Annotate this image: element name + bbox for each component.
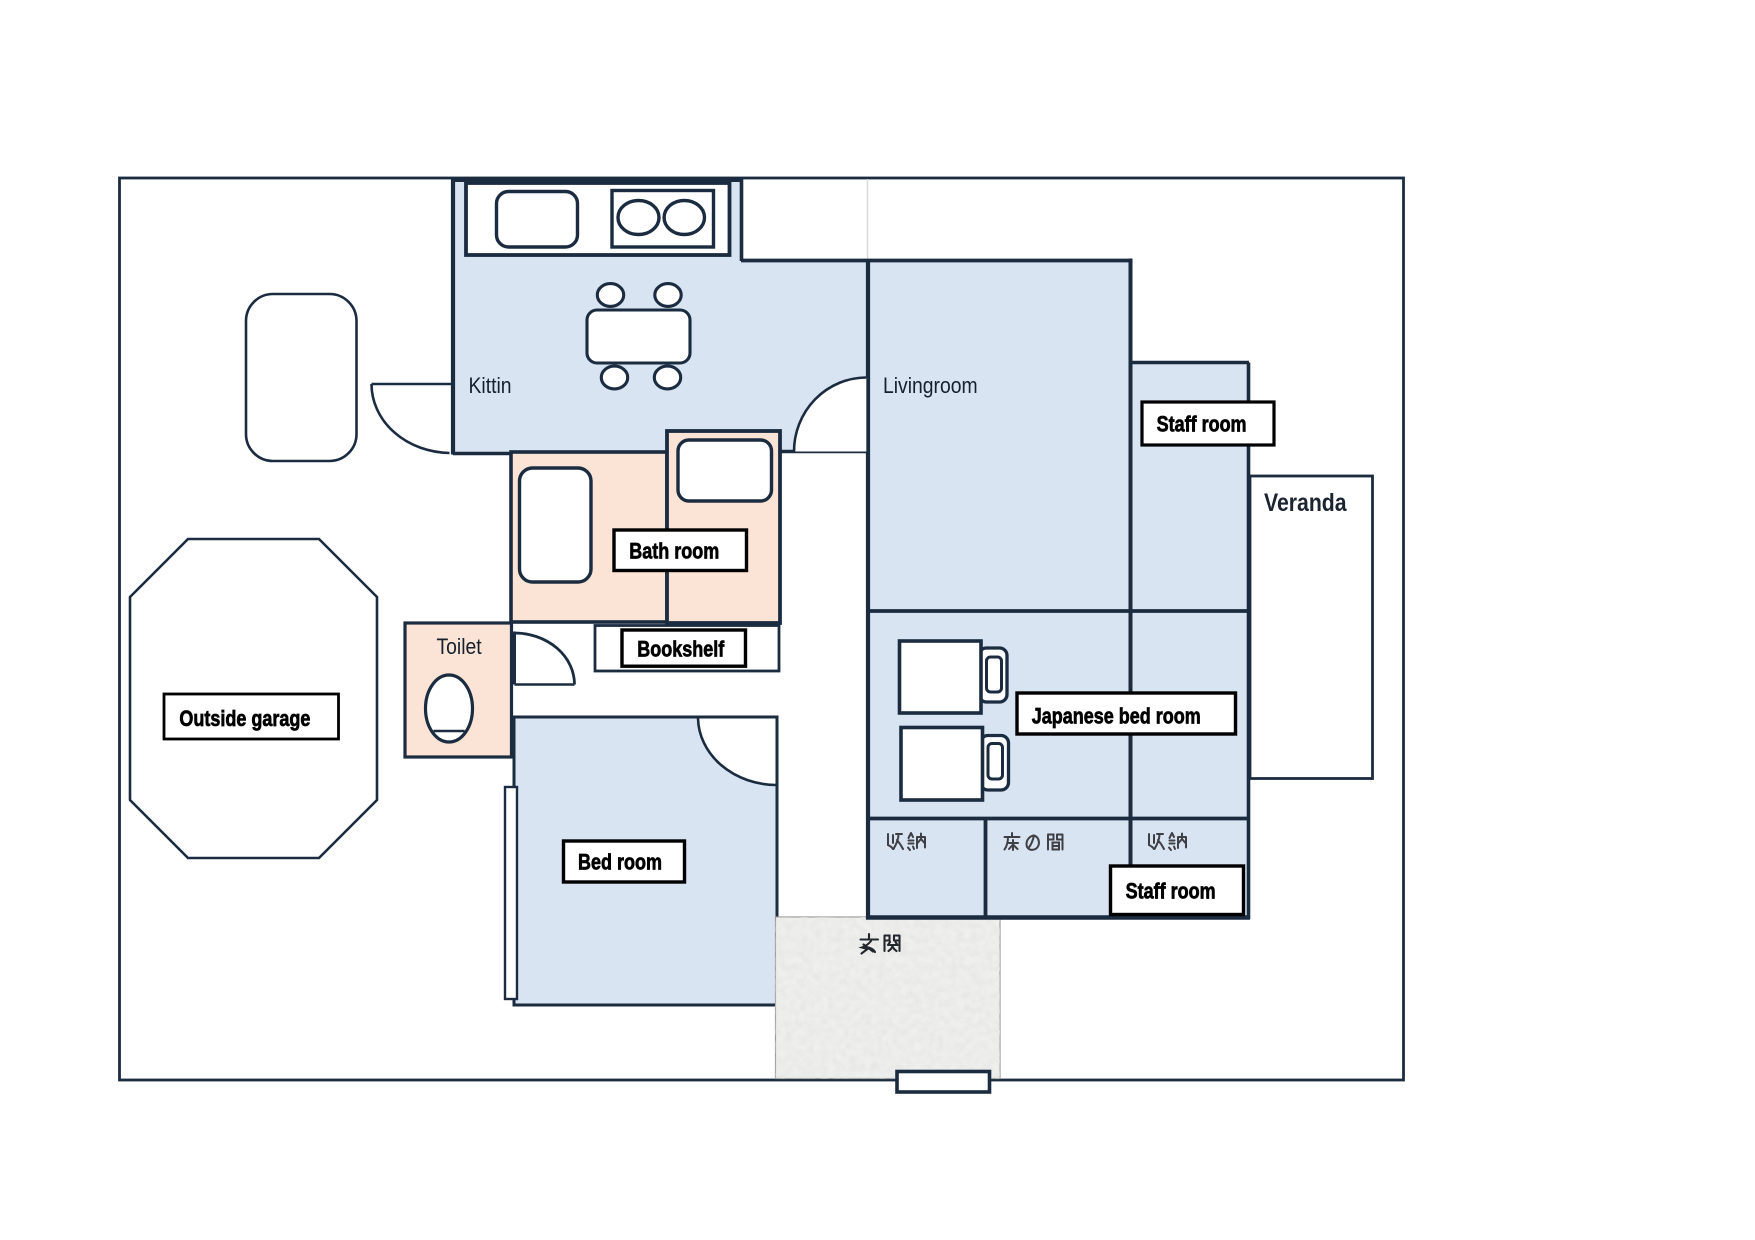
svg-text:Veranda: Veranda [1264, 488, 1348, 516]
svg-text:Bath room: Bath room [629, 540, 719, 564]
svg-text:Toilet: Toilet [436, 635, 481, 659]
svg-text:Livingroom: Livingroom [883, 374, 978, 398]
svg-text:Staff room: Staff room [1157, 413, 1247, 437]
svg-text:Japanese bed room: Japanese bed room [1032, 705, 1201, 729]
svg-text:Bookshelf: Bookshelf [637, 638, 724, 662]
svg-text:Bed room: Bed room [578, 851, 662, 875]
svg-text:Staff room: Staff room [1126, 880, 1216, 904]
svg-text:Kittin: Kittin [469, 374, 512, 398]
svg-text:Outside garage: Outside garage [179, 707, 310, 731]
